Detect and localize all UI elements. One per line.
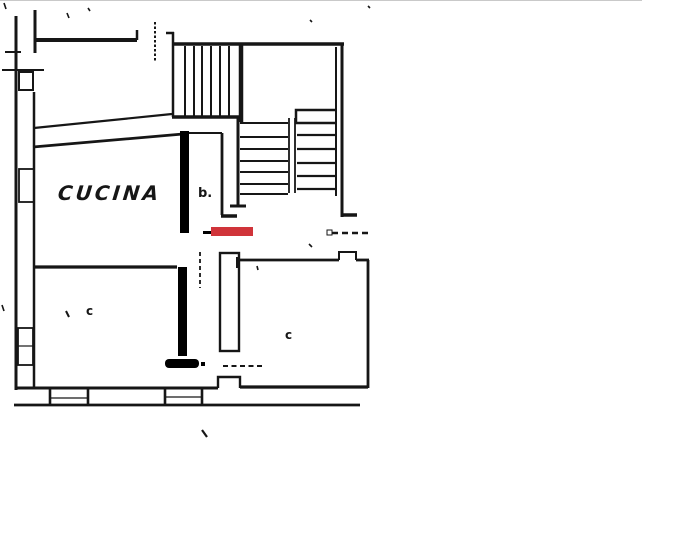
room-label-c-right: c	[285, 328, 292, 342]
black-marker-horizontal	[165, 359, 199, 368]
room-label-stair-hall: b.	[198, 186, 212, 201]
red-marker-opening	[211, 227, 253, 236]
black-marker-room-divider	[178, 267, 187, 356]
room-label-c-left: c	[86, 304, 93, 318]
stair-treads	[185, 46, 336, 194]
scanned-floorplan-page: CUCINA b. c c	[0, 0, 698, 557]
room-label-kitchen: CUCINA	[57, 181, 163, 205]
black-marker-corridor-wall	[180, 131, 189, 233]
bottom-windows	[14, 389, 360, 405]
outer-walls	[2, 16, 44, 390]
floorplan-drawing	[0, 0, 698, 557]
black-marker-dot	[201, 362, 205, 366]
dashed-lines	[223, 230, 369, 366]
upper-unit-walls	[34, 10, 155, 62]
